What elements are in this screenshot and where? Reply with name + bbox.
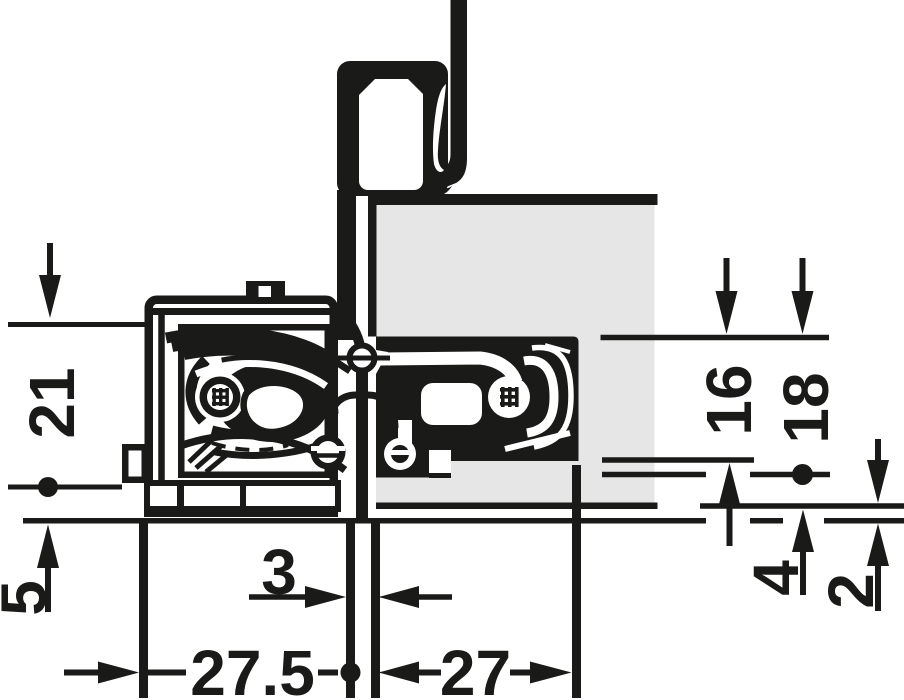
svg-text:27: 27	[440, 637, 511, 700]
svg-text:21: 21	[16, 367, 88, 438]
svg-text:4: 4	[740, 560, 812, 596]
svg-text:2: 2	[815, 573, 887, 609]
svg-text:18: 18	[770, 372, 842, 443]
svg-text:16: 16	[693, 364, 765, 435]
svg-text:27.5: 27.5	[190, 637, 315, 700]
svg-text:5: 5	[0, 580, 60, 616]
